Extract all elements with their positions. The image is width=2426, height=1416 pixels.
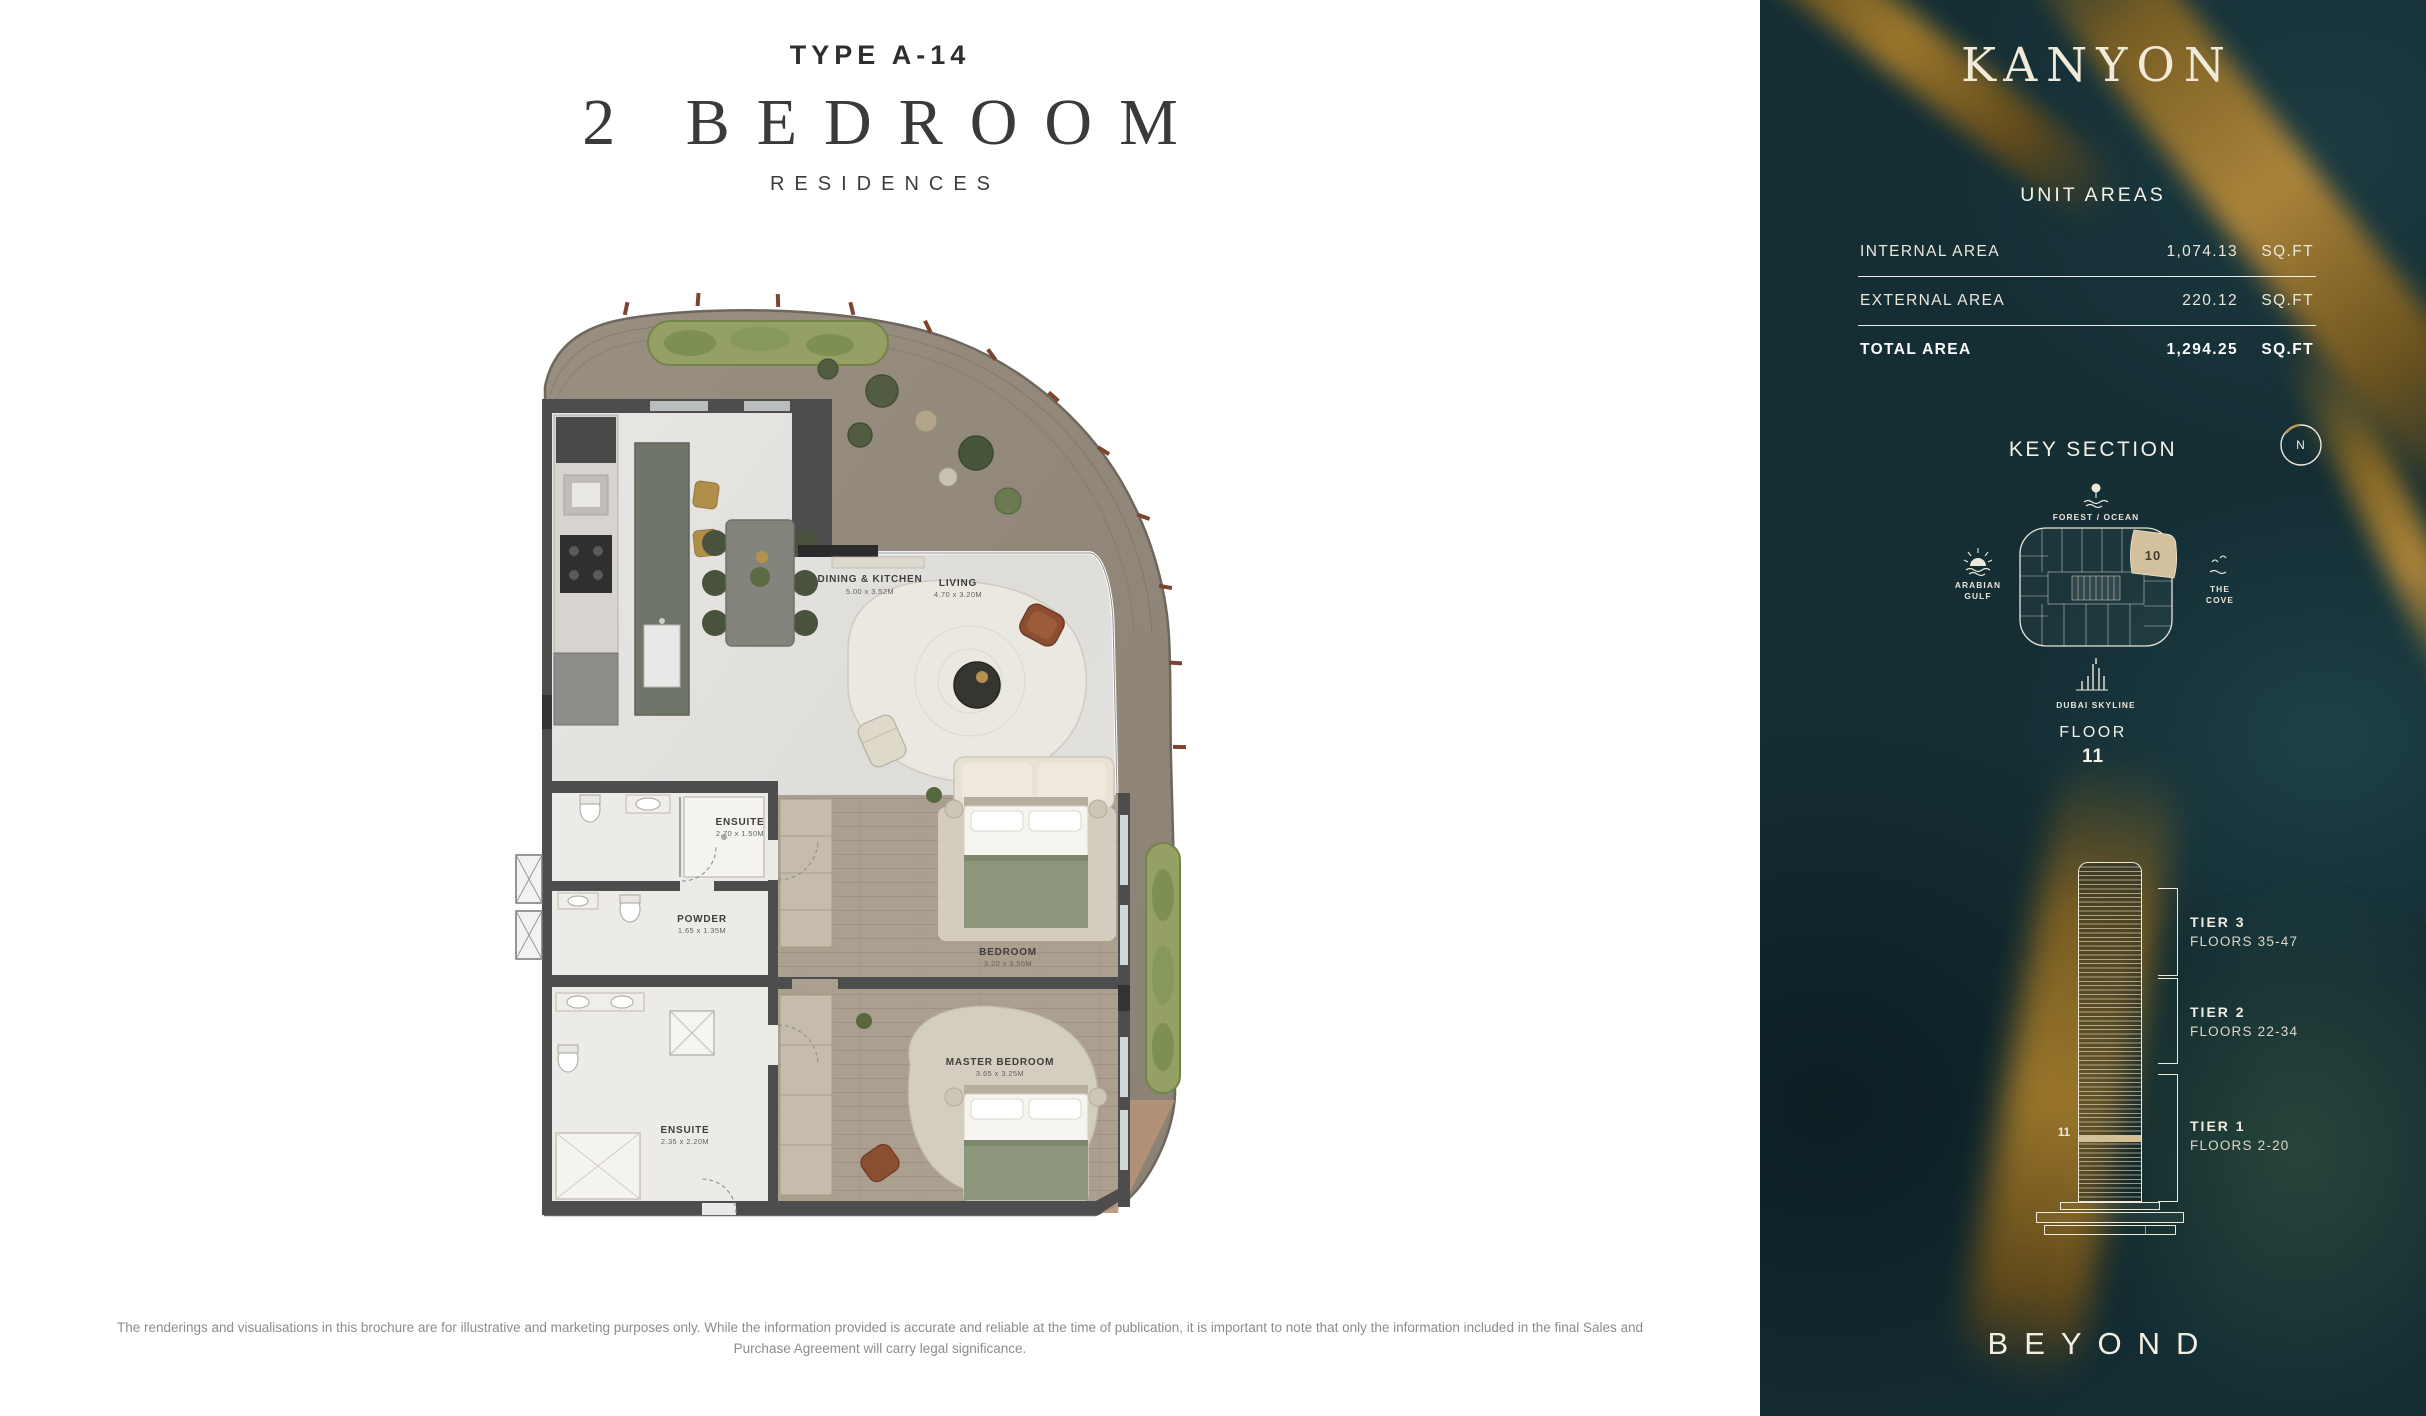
- floorplan-section: TYPE A-14 2 BEDROOM RESIDENCES: [0, 0, 1760, 1416]
- page-subtitle: RESIDENCES: [0, 173, 1760, 196]
- direction-label-bottom: DUBAI SKYLINE: [2056, 700, 2135, 710]
- room-dims: 2.35 x 2.20M: [661, 1137, 709, 1146]
- tower-elevation: TIER 3 FLOORS 35-47 TIER 2 FLOORS 22-34 …: [1760, 850, 2426, 1260]
- room-dims: 3.65 x 3.25M: [976, 1069, 1024, 1078]
- tower-podium: [2036, 1212, 2184, 1223]
- floor-plan: DINING & KITCHEN 5.00 x 3.52M LIVING 4.7…: [530, 295, 1190, 1235]
- area-value: 1,074.13: [2166, 243, 2238, 261]
- area-label: INTERNAL AREA: [1860, 243, 2000, 261]
- direction-label-right-2: COVE: [2206, 595, 2234, 605]
- service-shafts: [516, 855, 542, 959]
- brand-logo: KANYON: [1760, 38, 2426, 93]
- tower-body: [2078, 862, 2142, 1202]
- room-dims: 1.65 x 1.35M: [678, 926, 726, 935]
- highlighted-floor-band: [2079, 1135, 2141, 1142]
- unit-number: 10: [2145, 548, 2161, 563]
- floor-label: FLOOR: [1760, 724, 2426, 742]
- the-cove-icon: [2210, 556, 2226, 574]
- title-block: TYPE A-14 2 BEDROOM RESIDENCES: [0, 40, 1760, 196]
- tier1-bracket: [2158, 1074, 2178, 1202]
- tier-floors: FLOORS 22-34: [2190, 1024, 2298, 1039]
- direction-label-right-1: THE: [2210, 584, 2230, 594]
- room-dims: 4.70 x 3.20M: [934, 590, 982, 599]
- room-label: ENSUITE: [716, 817, 765, 828]
- tier-floors: FLOORS 2-20: [2190, 1138, 2289, 1153]
- direction-label-left-1: ARABIAN: [1955, 580, 2001, 590]
- info-panel: KANYON UNIT AREAS INTERNAL AREA 1,074.13…: [1760, 0, 2426, 1416]
- area-value: 1,294.25: [2166, 341, 2238, 359]
- room-label: LIVING: [939, 578, 977, 589]
- room-label: POWDER: [677, 914, 727, 925]
- room-dims: 3.20 x 3.55M: [984, 959, 1032, 968]
- planter-right: [1146, 843, 1180, 1093]
- brochure-page: TYPE A-14 2 BEDROOM RESIDENCES: [0, 0, 2426, 1416]
- tier-name: TIER 3: [2190, 914, 2298, 930]
- tier1-label: TIER 1 FLOORS 2-20: [2190, 1118, 2289, 1153]
- room-label: MASTER BEDROOM: [946, 1057, 1054, 1068]
- key-plan-diagram: 10: [1938, 476, 2258, 724]
- page-title: 2 BEDROOM: [0, 85, 1760, 161]
- arabian-gulf-icon: [1964, 548, 1992, 576]
- floor-number: 11: [1760, 746, 2426, 768]
- tier3-bracket: [2158, 888, 2178, 976]
- unit-areas-table: INTERNAL AREA 1,074.13 SQ.FT EXTERNAL AR…: [1858, 228, 2316, 374]
- floor-indicator: FLOOR 11: [1760, 724, 2426, 768]
- unit-type-label: TYPE A-14: [0, 40, 1760, 71]
- room-dims: 5.00 x 3.52M: [846, 587, 894, 596]
- room-label: DINING & KITCHEN: [817, 574, 922, 585]
- legal-disclaimer: The renderings and visualisations in thi…: [90, 1318, 1670, 1360]
- tower-podium: [2044, 1225, 2176, 1235]
- key-plan: 10: [1938, 476, 2258, 724]
- room-dims: 2.70 x 1.50M: [716, 829, 764, 838]
- room-label: BEDROOM: [979, 947, 1037, 958]
- area-label: EXTERNAL AREA: [1860, 292, 2005, 310]
- area-unit: SQ.FT: [2238, 341, 2314, 359]
- area-label: TOTAL AREA: [1860, 341, 1972, 359]
- tower-floor-marker: 11: [2042, 1127, 2070, 1139]
- direction-label-top: FOREST / OCEAN: [2053, 512, 2140, 522]
- dining-table: [702, 520, 818, 646]
- compass-north-label: N: [2278, 422, 2324, 468]
- bedroom: [780, 797, 1116, 947]
- area-unit: SQ.FT: [2238, 292, 2314, 310]
- tier2-bracket: [2158, 978, 2178, 1064]
- tower-podium: [2060, 1202, 2160, 1210]
- highlighted-unit: 10: [2130, 530, 2176, 578]
- unit-areas-title: UNIT AREAS: [1760, 184, 2426, 207]
- table-row: INTERNAL AREA 1,074.13 SQ.FT: [1858, 228, 2316, 276]
- tier-floors: FLOORS 35-47: [2190, 934, 2298, 949]
- area-unit: SQ.FT: [2238, 243, 2314, 261]
- tier-name: TIER 2: [2190, 1004, 2298, 1020]
- compass: N: [2278, 422, 2324, 468]
- room-label: ENSUITE: [661, 1125, 710, 1136]
- forest-ocean-icon: [2084, 484, 2108, 508]
- direction-label-left-2: GULF: [1964, 591, 1991, 601]
- planter-top: [648, 321, 888, 365]
- floor-plan-drawing: DINING & KITCHEN 5.00 x 3.52M LIVING 4.7…: [530, 295, 1190, 1235]
- area-value: 220.12: [2182, 292, 2238, 310]
- tier-name: TIER 1: [2190, 1118, 2289, 1134]
- master-bedroom: [780, 995, 1107, 1200]
- tier2-label: TIER 2 FLOORS 22-34: [2190, 1004, 2298, 1039]
- table-row: EXTERNAL AREA 220.12 SQ.FT: [1858, 276, 2316, 325]
- dubai-skyline-icon: [2076, 658, 2108, 690]
- tier3-label: TIER 3 FLOORS 35-47: [2190, 914, 2298, 949]
- table-row-total: TOTAL AREA 1,294.25 SQ.FT: [1858, 325, 2316, 374]
- key-section-title: KEY SECTION: [1760, 438, 2426, 462]
- developer-logo: BEYOND: [1760, 1326, 2426, 1362]
